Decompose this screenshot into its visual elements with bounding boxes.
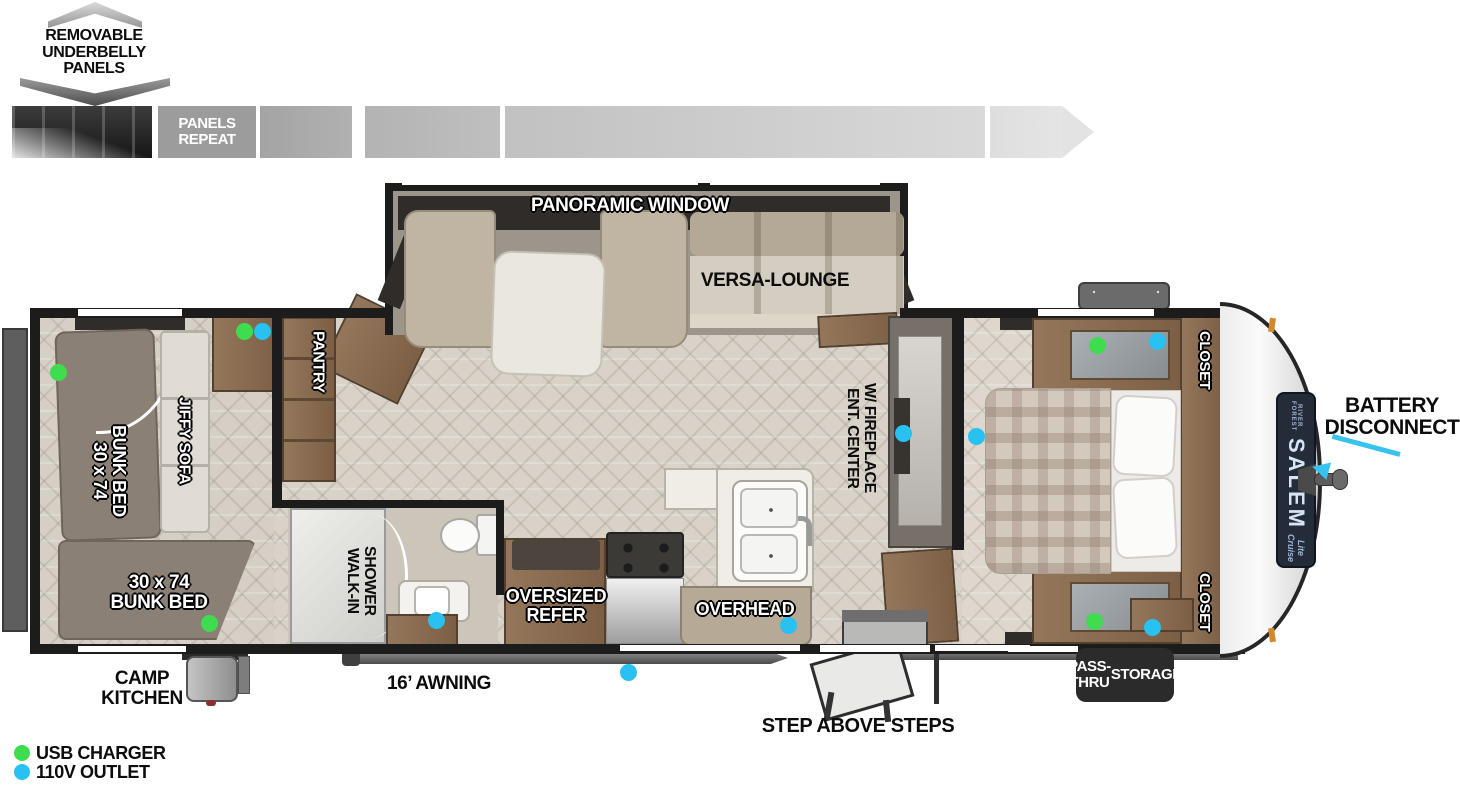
usb-charger-dot — [1089, 337, 1106, 354]
110v-outlet-dot — [895, 425, 912, 442]
bunk-side-name: BUNK BED — [109, 425, 129, 517]
kitchen-bottom-window-trim — [620, 645, 800, 651]
versa-lounge-label: VERSA-LOUNGE — [690, 270, 860, 292]
camp-kitchen-arm — [238, 656, 250, 694]
slideout-window-trim — [710, 178, 880, 185]
slideout-window-trim — [402, 178, 698, 185]
floorplan-diagram: REMOVABLE UNDERBELLY PANELS PANELS REPEA… — [0, 0, 1460, 785]
bed-pillow — [1112, 476, 1178, 559]
bathroom-top-wall — [282, 500, 504, 508]
sink-faucet — [798, 516, 812, 546]
refer-line2: REFER — [526, 605, 585, 625]
awning-support-arm — [934, 652, 939, 704]
range-front — [606, 578, 684, 644]
bedroom-bottom-window-trim — [1008, 646, 1078, 652]
entry-step-inside-tread — [842, 610, 928, 622]
refer-label: OVERSIZED REFER — [498, 580, 614, 632]
versa-lounge-back — [690, 212, 904, 256]
panel-segment — [990, 106, 1062, 158]
bunkroom-divider-wall — [272, 312, 282, 508]
usb-charger-dot — [50, 364, 67, 381]
sink-basin-bottom — [740, 534, 798, 574]
range-cooktop — [606, 532, 684, 578]
110v-outlet-dot — [428, 612, 445, 629]
bed-pillow — [1112, 394, 1178, 477]
panel-arrow-tip — [1062, 106, 1094, 158]
panels-repeat-label: PANELS REPEAT — [172, 116, 242, 148]
bunk-rear-label: 30 x 74 BUNK BED — [84, 570, 234, 616]
bathroom-sink-bowl — [414, 586, 450, 616]
sink-basin-top — [740, 488, 798, 528]
usb-charger-dot — [236, 323, 253, 340]
arrow-up-icon — [48, 2, 142, 28]
panel-segment — [365, 106, 500, 158]
panel-strip-fade — [12, 128, 157, 180]
110v-outlet-dot — [1149, 333, 1166, 350]
panels-repeat-box: PANELS REPEAT — [158, 106, 256, 158]
bunk-side-size: 30 x 74 — [90, 442, 110, 499]
arrow-down-icon — [20, 78, 170, 106]
ent-center-label: ENT. CENTER W/ FIREPLACE — [834, 352, 886, 524]
bunk-rear-name: BUNK BED — [110, 592, 207, 613]
underbelly-title: REMOVABLE UNDERBELLY PANELS — [20, 26, 168, 80]
110v-outlet-dot — [1144, 619, 1161, 636]
pantry-label: PANTRY — [296, 316, 338, 408]
bedroom-top-window-trim — [1038, 309, 1154, 316]
110v-outlet-dot — [780, 617, 797, 634]
bunkroom-top-window-trim — [78, 309, 182, 316]
rear-bumper — [2, 328, 28, 632]
110v-outlet-swatch — [14, 764, 30, 780]
pass-thru-badge: PASS-THRUSTORAGE — [1076, 648, 1174, 702]
closet-top-label: CLOSET — [1186, 318, 1222, 402]
bunk-rear-size: 30 x 74 — [129, 572, 190, 593]
shower-line1: WALK-IN — [344, 548, 361, 614]
battery-disconnect-switch-knob — [1332, 469, 1348, 490]
panel-segment — [505, 106, 985, 158]
rear-wall — [30, 308, 40, 654]
bunk-side-label: 30 x 74 BUNK BED — [80, 396, 138, 546]
bathroom-vanity-cabinet — [386, 614, 458, 646]
usb-charger-dot — [1086, 613, 1103, 630]
bedroom-wall — [952, 312, 964, 550]
110v-outlet-dot — [254, 323, 271, 340]
dinette-table — [490, 250, 606, 378]
110v-outlet-dot — [968, 428, 985, 445]
shower-label: WALK-IN SHOWER — [334, 518, 386, 644]
refer-line1: OVERSIZED — [506, 586, 606, 606]
usb-charger-swatch — [14, 745, 30, 761]
ent-center-line1: ENT. CENTER — [844, 388, 861, 489]
kitchen-counter — [664, 468, 722, 510]
battery-disconnect-label: BATTERY DISCONNECT — [1322, 392, 1460, 442]
pass-thru-storage-box — [1130, 598, 1194, 632]
dinette-bench-right — [600, 210, 688, 348]
bedroom-ac-unit — [1078, 282, 1170, 310]
brand-maker: FOREST RIVER — [1290, 394, 1302, 438]
dinette-bench-left — [404, 210, 496, 348]
closet-bottom-label: CLOSET — [1186, 560, 1222, 644]
panel-segment — [260, 106, 352, 158]
pass-thru-line2: STORAGE — [1111, 667, 1182, 683]
camp-kitchen-line2: KITCHEN — [101, 688, 183, 709]
brand-series: Cruise Lite — [1286, 530, 1306, 566]
legend-outlet: 110V OUTLET — [14, 763, 150, 781]
shower-line2: SHOWER — [361, 546, 378, 616]
110v-outlet-dot — [620, 664, 637, 681]
battery-line2: DISCONNECT — [1325, 416, 1460, 439]
camp-kitchen-knob — [206, 700, 216, 706]
panoramic-window-label: PANORAMIC WINDOW — [495, 194, 765, 218]
refrigerator-top — [512, 540, 600, 570]
110v-outlet-label: 110V OUTLET — [36, 763, 150, 782]
entry-door-opening — [820, 645, 930, 652]
pass-thru-label: PASS-THRUSTORAGE — [1068, 659, 1182, 691]
usb-charger-dot — [201, 615, 218, 632]
awning-label: 16’ AWNING — [376, 672, 502, 696]
bunkroom-bottom-window-trim — [78, 646, 186, 652]
living-overhead-cabinet — [817, 312, 899, 348]
usb-charger-label: USB CHARGER — [36, 744, 166, 763]
camp-kitchen-line1: CAMP — [115, 668, 169, 689]
bed-mattress — [985, 388, 1111, 574]
steps-label: STEP ABOVE STEPS — [754, 712, 962, 740]
legend-usb: USB CHARGER — [14, 744, 166, 762]
toilet-bowl — [440, 518, 480, 553]
battery-line1: BATTERY — [1345, 394, 1439, 417]
ent-center-line2: W/ FIREPLACE — [861, 383, 878, 493]
pass-thru-line1: PASS-THRU — [1068, 659, 1111, 691]
camp-kitchen-label: CAMP KITCHEN — [88, 666, 196, 712]
jiffy-sofa-label: JIFFY SOFA — [162, 376, 204, 506]
